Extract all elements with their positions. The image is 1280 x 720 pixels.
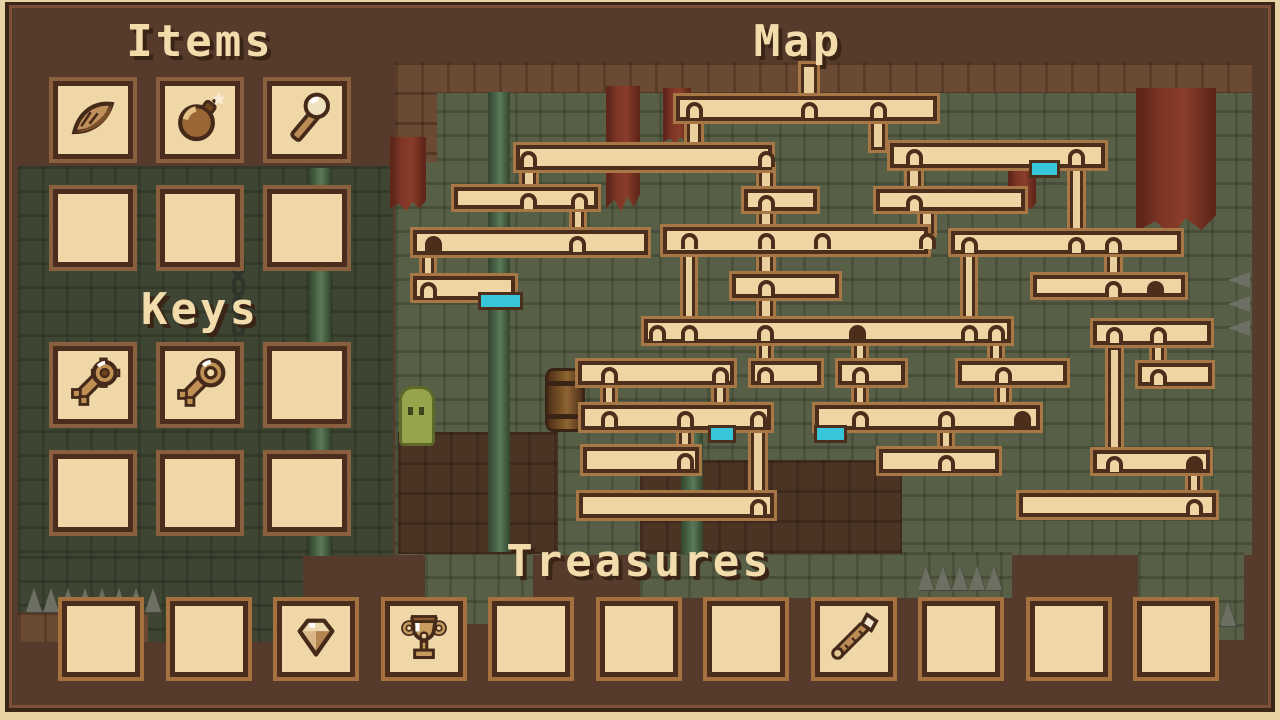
- map-room: [663, 227, 928, 254]
- map-door: [919, 233, 936, 249]
- item-slot-feather[interactable]: [53, 81, 133, 159]
- map-door: [712, 367, 729, 383]
- map-door-locked: [1014, 411, 1031, 427]
- key-gear-icon: [65, 355, 121, 415]
- item-slot-torch[interactable]: [267, 81, 347, 159]
- key-slot-empty[interactable]: [267, 346, 347, 424]
- map-door: [1150, 369, 1167, 385]
- slime-statue: [399, 386, 435, 446]
- wall-spike-icon: [1228, 272, 1250, 288]
- spike-icon: [26, 588, 42, 612]
- map-door: [995, 367, 1012, 383]
- map-corridor: [751, 430, 765, 499]
- spike-icon: [145, 588, 161, 612]
- map-door: [961, 237, 978, 253]
- map-door: [601, 411, 618, 427]
- treasure-slot-diamond[interactable]: [277, 601, 355, 677]
- items-title: Items: [58, 16, 342, 67]
- feather-icon: [65, 90, 121, 150]
- map-title: Map: [718, 16, 878, 67]
- map-door: [758, 195, 775, 211]
- map-door: [758, 151, 775, 167]
- map-door: [814, 233, 831, 249]
- map-door-locked: [1147, 281, 1164, 297]
- item-slot-empty[interactable]: [53, 189, 133, 267]
- goblet-icon: [396, 609, 452, 669]
- diamond-icon: [288, 609, 344, 669]
- map-door: [520, 151, 537, 167]
- spikes-bottom-mid: [918, 566, 1003, 590]
- map-door: [757, 325, 774, 341]
- spike-icon: [935, 566, 951, 590]
- map-door: [569, 236, 586, 252]
- map-door: [1068, 237, 1085, 253]
- treasure-slot-empty[interactable]: [600, 601, 678, 677]
- map-door: [906, 149, 923, 165]
- map-room: [516, 145, 772, 170]
- keys-title: Keys: [58, 284, 342, 335]
- map-corridor: [963, 252, 975, 326]
- map-door: [1105, 237, 1122, 253]
- red-banner-5: [1136, 88, 1216, 236]
- spike-icon: [952, 566, 968, 590]
- map-room: [579, 493, 774, 518]
- map-door-locked: [425, 236, 442, 252]
- map-door: [801, 102, 818, 118]
- item-slot-bomb[interactable]: [160, 81, 240, 159]
- map-door: [1068, 149, 1085, 165]
- map-door: [757, 367, 774, 383]
- map-door: [906, 195, 923, 211]
- spike-icon: [43, 588, 59, 612]
- map-room: [838, 361, 905, 385]
- map-corridor: [683, 252, 695, 326]
- treasures-title: Treasures: [489, 536, 789, 587]
- map-door: [1106, 456, 1123, 472]
- map-room: [413, 230, 648, 255]
- map-room: [958, 361, 1067, 385]
- map-door: [649, 325, 666, 341]
- map-door: [750, 499, 767, 515]
- red-banner-1: [390, 137, 426, 211]
- item-slot-empty[interactable]: [267, 189, 347, 267]
- item-slot-empty[interactable]: [160, 189, 240, 267]
- map-door: [677, 411, 694, 427]
- torch-icon: [279, 90, 335, 150]
- map-door: [870, 102, 887, 118]
- treasure-slot-empty[interactable]: [707, 601, 785, 677]
- key-slot-key-gear[interactable]: [53, 346, 133, 424]
- spike-icon: [969, 566, 985, 590]
- map-door: [686, 102, 703, 118]
- treasure-slot-empty[interactable]: [492, 601, 570, 677]
- map-door: [1105, 281, 1122, 297]
- key-slot-empty[interactable]: [160, 454, 240, 532]
- map-water-marker: [1029, 160, 1060, 178]
- map-water-marker: [478, 292, 523, 310]
- treasure-slot-scepter[interactable]: [815, 601, 893, 677]
- key-slot-empty[interactable]: [267, 454, 347, 532]
- map-water-marker: [814, 425, 847, 443]
- map-door: [852, 367, 869, 383]
- map-door: [1186, 499, 1203, 515]
- map-door: [1106, 327, 1123, 343]
- map-corridor: [1070, 163, 1083, 238]
- key-round-icon: [172, 355, 228, 415]
- key-slot-empty[interactable]: [53, 454, 133, 532]
- bomb-icon: [172, 90, 228, 150]
- map-corridor: [1108, 347, 1121, 456]
- map-door: [961, 325, 978, 341]
- treasure-slot-empty[interactable]: [170, 601, 248, 677]
- map-door: [852, 411, 869, 427]
- treasure-slot-empty[interactable]: [62, 601, 140, 677]
- map-room: [644, 319, 1011, 343]
- pipe-map-left: [488, 92, 510, 552]
- map-room: [732, 274, 839, 298]
- map-room: [815, 405, 1040, 430]
- treasure-slot-goblet[interactable]: [385, 601, 463, 677]
- treasure-slot-empty[interactable]: [1030, 601, 1108, 677]
- wall-spike-icon: [1228, 320, 1250, 336]
- map-door: [938, 411, 955, 427]
- map-door: [1150, 327, 1167, 343]
- map-room: [951, 231, 1181, 254]
- map-door: [681, 233, 698, 249]
- map-door: [601, 367, 618, 383]
- map-door: [750, 411, 767, 427]
- spike-icon: [918, 566, 934, 590]
- spike-icon: [986, 566, 1002, 590]
- map-door: [758, 233, 775, 249]
- inventory-screen: Items Map Keys Treasures: [0, 0, 1280, 720]
- spike-icon: [1220, 602, 1236, 626]
- map-door: [571, 193, 588, 209]
- key-slot-key-round[interactable]: [160, 346, 240, 424]
- map-water-marker: [708, 425, 736, 443]
- map-room: [876, 189, 1025, 211]
- scepter-icon: [826, 609, 882, 669]
- map-door: [758, 280, 775, 296]
- map-door: [420, 282, 437, 298]
- wall-spike-icon: [1228, 296, 1250, 312]
- map-door-locked: [1186, 456, 1203, 472]
- map-door: [677, 453, 694, 469]
- map-door-locked: [849, 325, 866, 341]
- map-door: [988, 325, 1005, 341]
- map-door: [681, 325, 698, 341]
- treasure-slot-empty[interactable]: [1137, 601, 1215, 677]
- map-room: [744, 189, 817, 211]
- map-door: [938, 455, 955, 471]
- treasure-slot-empty[interactable]: [922, 601, 1000, 677]
- map-door: [520, 193, 537, 209]
